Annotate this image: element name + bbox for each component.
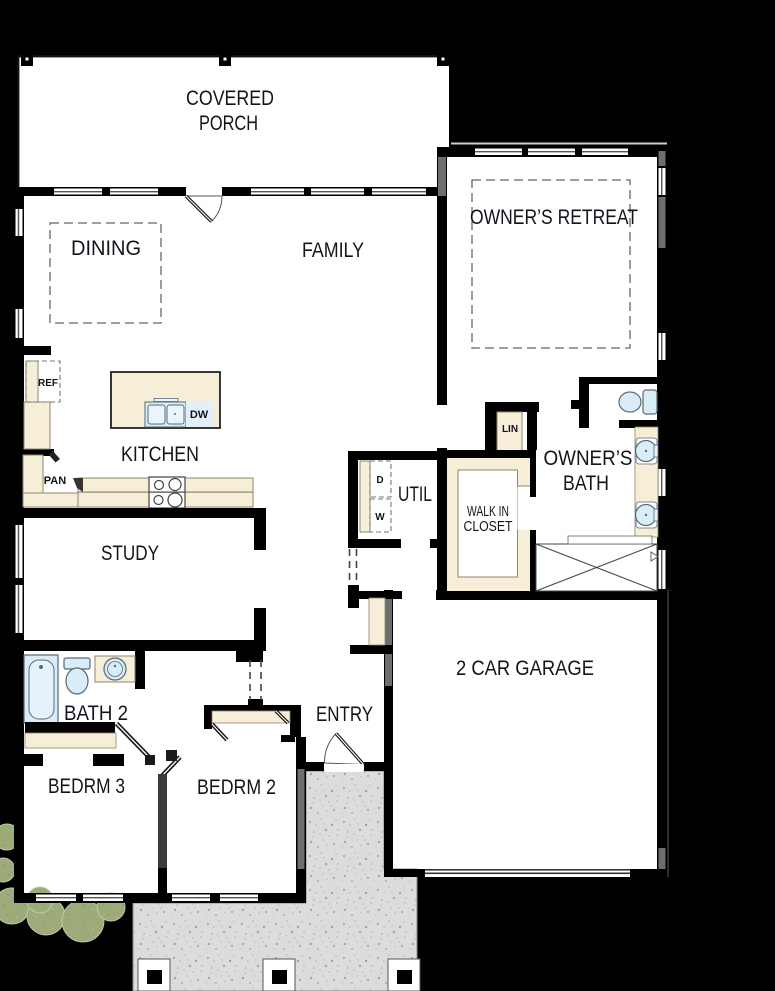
svg-text:D: D <box>376 475 383 486</box>
svg-text:OWNER’S: OWNER’S <box>544 446 633 470</box>
svg-text:ENTRY: ENTRY <box>316 702 373 726</box>
svg-text:UTIL: UTIL <box>398 482 432 506</box>
svg-text:DW: DW <box>190 409 209 421</box>
svg-text:BEDRM 3: BEDRM 3 <box>48 774 125 798</box>
svg-text:LIN: LIN <box>502 424 518 435</box>
svg-text:PORCH: PORCH <box>199 111 258 135</box>
svg-text:PAN: PAN <box>44 475 66 487</box>
svg-text:OWNER’S RETREAT: OWNER’S RETREAT <box>470 205 638 229</box>
svg-text:2 CAR GARAGE: 2 CAR GARAGE <box>456 656 594 680</box>
svg-text:FAMILY: FAMILY <box>302 238 364 262</box>
svg-text:KITCHEN: KITCHEN <box>121 442 199 466</box>
svg-text:BEDRM 2: BEDRM 2 <box>197 775 276 799</box>
svg-text:STUDY: STUDY <box>101 541 159 565</box>
svg-text:BATH: BATH <box>563 471 609 495</box>
svg-text:WALK IN: WALK IN <box>467 504 509 520</box>
svg-text:BATH 2: BATH 2 <box>64 701 128 725</box>
svg-text:W: W <box>375 512 385 523</box>
svg-text:DINING: DINING <box>71 236 141 260</box>
svg-text:REF: REF <box>38 378 58 389</box>
svg-text:COVERED: COVERED <box>186 86 274 110</box>
svg-text:CLOSET: CLOSET <box>464 519 513 535</box>
